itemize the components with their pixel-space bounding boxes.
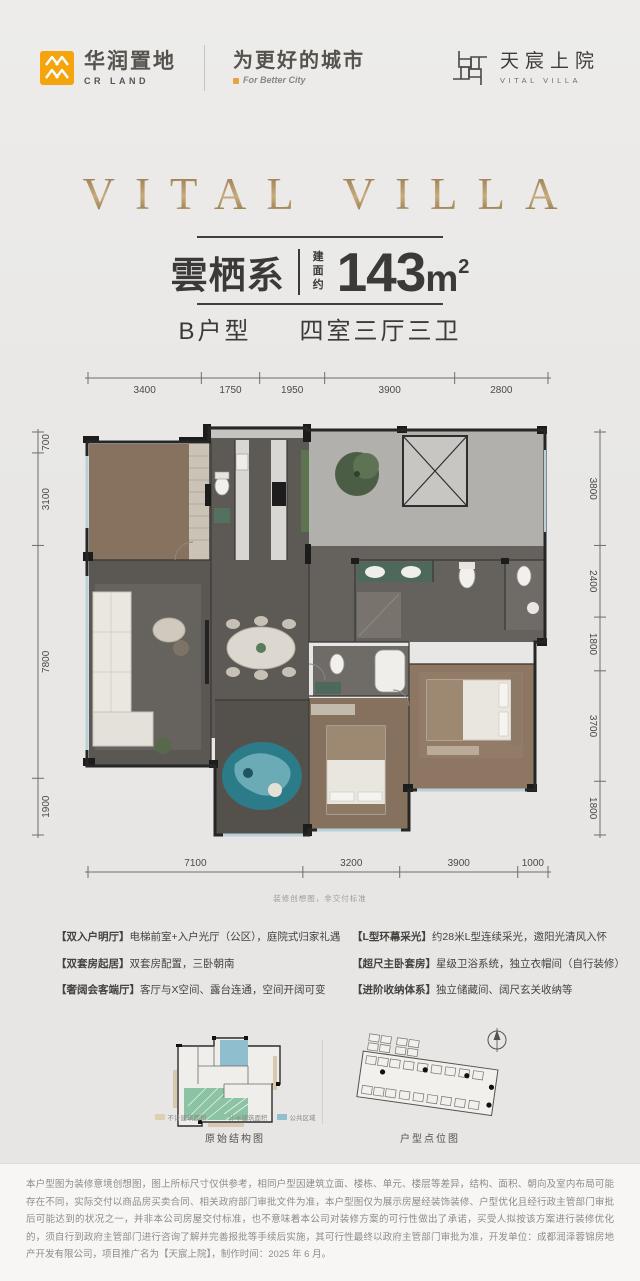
feature-item: 【双入户明厅】电梯前室+入户光厅（公区），庭院式归家礼遇 <box>56 931 352 945</box>
svg-text:1800: 1800 <box>587 633 598 656</box>
svg-text:7100: 7100 <box>184 858 207 869</box>
slogan-mark-icon <box>233 78 239 84</box>
feature-item: 【双套房起居】双套房配置，三卧朝南 <box>56 958 352 972</box>
features-section: 【双入户明厅】电梯前室+入户光厅（公区），庭院式归家礼遇【双套房起居】双套房配置… <box>0 931 640 1011</box>
svg-text:1950: 1950 <box>281 385 304 396</box>
project-name-en: VITAL VILLA <box>500 77 600 85</box>
features-left-column: 【双入户明厅】电梯前室+入户光厅（公区），庭院式归家礼遇【双套房起居】双套房配置… <box>56 931 352 1011</box>
svg-text:3400: 3400 <box>134 385 157 396</box>
feature-item: 【进阶收纳体系】独立储藏间、阔尺玄关收纳等 <box>352 984 620 998</box>
dims-left: 700310078001900 <box>30 428 56 844</box>
project-logo: 天宸上院 VITAL VILLA <box>450 48 600 88</box>
structure-caption: 原始结构图 <box>160 1130 310 1145</box>
floor-plan-drawing <box>75 424 557 845</box>
series-divider <box>298 249 300 295</box>
header-divider <box>204 45 205 91</box>
crland-sub: CR LAND <box>84 77 176 86</box>
floor-plan <box>75 424 557 845</box>
hero-title: VITAL VILLA <box>0 168 640 220</box>
vital-villa-emblem-icon <box>450 48 490 88</box>
header: 华润置地 CR LAND 为更好的城市 For Better City 天宸上院 <box>40 38 600 98</box>
svg-text:2400: 2400 <box>587 570 598 593</box>
siteplan-caption: 户型点位图 <box>355 1130 505 1145</box>
crland-slogan: 为更好的城市 <box>233 51 365 71</box>
dims-top: 34001750195039002800 <box>84 370 552 403</box>
feature-item: 【L型环幕采光】约28米L型连续采光，邀阳光清风入怀 <box>352 931 620 945</box>
divider-rule-top <box>197 236 443 238</box>
svg-text:7800: 7800 <box>41 650 52 673</box>
svg-text:700: 700 <box>41 434 52 451</box>
unit-type-label: B户型 <box>178 311 251 346</box>
svg-text:3900: 3900 <box>448 858 471 869</box>
series-row: 雲栖系 建面约 143m2 <box>0 243 640 301</box>
divider-rule-bottom <box>197 303 443 305</box>
north-compass-icon <box>488 1028 506 1052</box>
footer: 本户型图为装修意境创想图，图上所标尺寸仅供参考，相同户型因建筑立面、楼栋、单元、… <box>0 1163 640 1281</box>
legend-item: 计半建筑面积 <box>216 1112 268 1122</box>
feature-item: 【奢阔会客端厅】客厅与X空间、露台连通，空间开阔可变 <box>56 984 352 998</box>
svg-text:3900: 3900 <box>379 385 402 396</box>
dims-right: 38002400180037001800 <box>582 428 608 844</box>
dims-bottom: 7100320039001000 <box>84 854 552 887</box>
disclaimer-text: 本户型图为装修意境创想图，图上所标尺寸仅供参考，相同户型因建筑立面、楼栋、单元、… <box>26 1176 614 1264</box>
svg-text:1900: 1900 <box>41 795 52 818</box>
structure-legend: 不计建筑面积计半建筑面积公共区域 <box>140 1112 330 1122</box>
crland-slogan-en: For Better City <box>233 76 365 85</box>
diagram-divider <box>322 1040 323 1124</box>
svg-text:1000: 1000 <box>522 858 545 869</box>
svg-text:3100: 3100 <box>41 488 52 511</box>
area-prefix: 建面约 <box>313 251 324 292</box>
svg-text:1800: 1800 <box>587 797 598 820</box>
unit-layout-label: 四室三厅三卫 <box>300 311 462 346</box>
legend-item: 不计建筑面积 <box>155 1112 207 1122</box>
project-name: 天宸上院 <box>500 52 600 71</box>
siteplan-diagram <box>345 1026 515 1138</box>
crland-name: 华润置地 <box>84 51 176 72</box>
svg-text:2800: 2800 <box>490 385 513 396</box>
area-figure: 143m2 <box>337 245 470 300</box>
svg-text:3200: 3200 <box>340 858 363 869</box>
poster-page: 华润置地 CR LAND 为更好的城市 For Better City 天宸上院 <box>0 0 640 1280</box>
crland-logo: 华润置地 CR LAND 为更好的城市 For Better City <box>40 45 365 91</box>
crland-mountain-icon <box>40 51 74 85</box>
svg-text:1750: 1750 <box>219 385 242 396</box>
features-right-column: 【L型环幕采光】约28米L型连续采光，邀阳光清风入怀【超尺主卧套房】星级卫浴系统… <box>352 931 620 1011</box>
plan-caption: 装修创想图，非交付标准 <box>0 893 640 904</box>
svg-text:3800: 3800 <box>587 478 598 501</box>
legend-item: 公共区域 <box>277 1112 316 1122</box>
feature-item: 【超尺主卧套房】星级卫浴系统，独立衣帽间（自行装修） <box>352 958 620 972</box>
series-name: 雲栖系 <box>171 245 285 299</box>
type-row: B户型 四室三厅三卫 <box>0 311 640 346</box>
svg-text:3700: 3700 <box>587 715 598 738</box>
